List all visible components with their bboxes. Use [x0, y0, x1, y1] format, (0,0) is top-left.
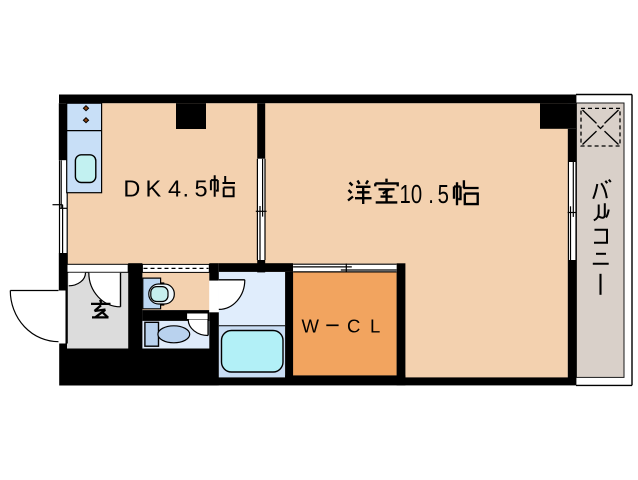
svg-text:5: 5 [438, 179, 449, 208]
svg-text:.: . [428, 179, 434, 208]
svg-text:0: 0 [411, 179, 422, 208]
svg-text:1: 1 [400, 179, 411, 208]
